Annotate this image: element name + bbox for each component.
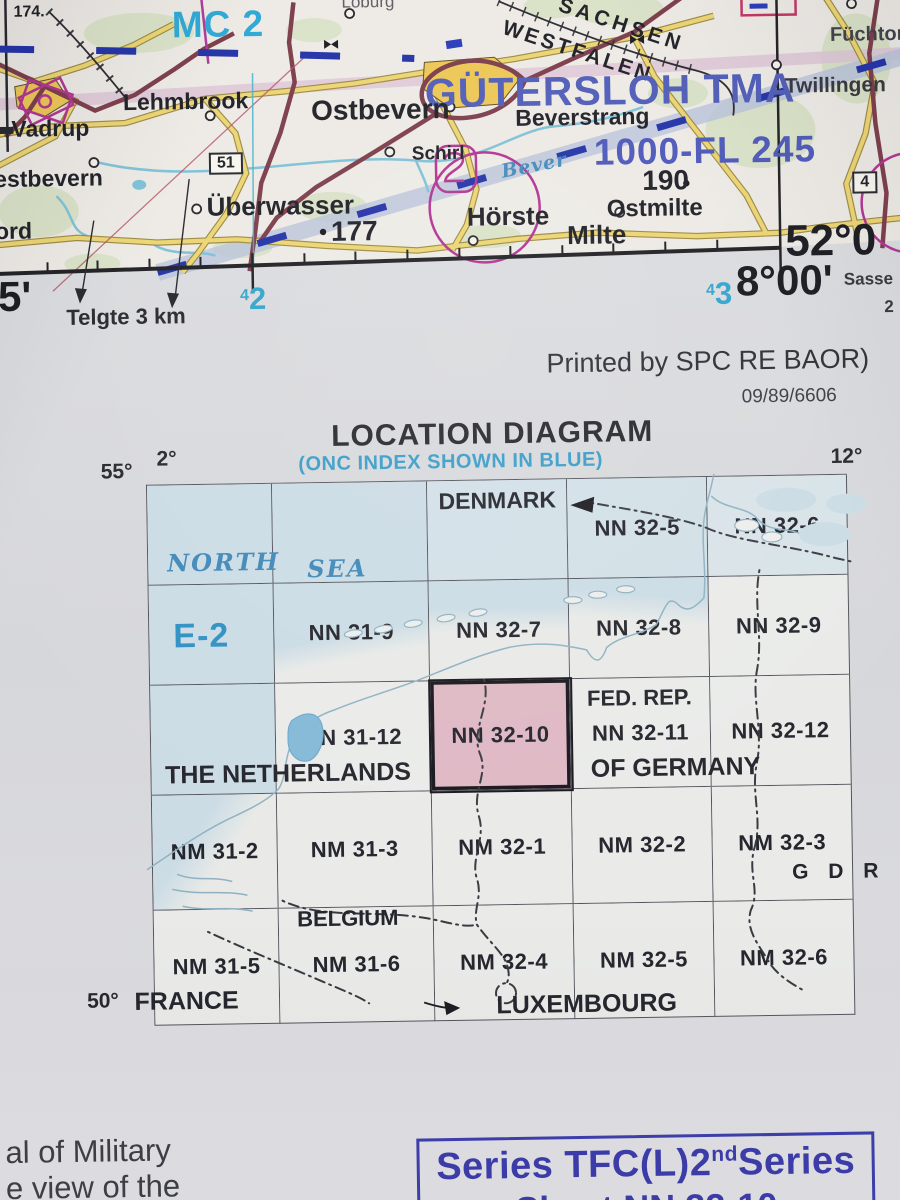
sea-label-sea: SEA: [297, 553, 377, 583]
corner-lat-55: 55°: [101, 460, 133, 484]
cell-nn-32-8: NN 32-8: [569, 577, 711, 679]
onc-sheet-label-e2: E-2: [173, 616, 230, 656]
road-shield-51: 51: [209, 152, 243, 175]
spot-height-190: 190: [642, 164, 689, 197]
margin-telgte-distance: Telgte 3 km: [66, 303, 186, 331]
cell-nn-31-9: NN 31-9: [274, 581, 431, 683]
latitude-label-52n: 52°0: [785, 215, 877, 266]
place-twillingen: Twillingen: [785, 73, 886, 99]
aeronautical-chart-corner: 174. MC 2 Loburg SACHSEN WESTFALEN GÜTER…: [0, 0, 899, 352]
place-horste: Hörste: [467, 200, 550, 232]
series-title: Series TFC(L)2ndSeries: [419, 1139, 872, 1189]
place-ostbevern: Ostbevern: [311, 93, 450, 127]
cell-nn-32-9: NN 32-9: [708, 575, 850, 677]
cell-nn-32-7: NN 32-7: [429, 579, 571, 681]
utm-grid-43-num: 3: [715, 276, 733, 311]
airspace-label-mc2: MC 2: [171, 3, 264, 46]
place-loburg: Loburg: [341, 0, 394, 13]
footer-text-line1: al of Military: [5, 1132, 171, 1171]
printed-by-imprint: Printed by SPC RE BAOR): [419, 343, 869, 381]
country-label-netherlands: THE NETHERLANDS: [140, 757, 435, 791]
corner-lon-12: 12°: [830, 445, 862, 469]
print-code: 09/89/6606: [742, 385, 837, 408]
country-label-belgium: BELGIUM: [288, 905, 408, 933]
series-suffix: Series: [738, 1140, 856, 1184]
place-beverstrang: Beverstrang: [515, 103, 650, 132]
place-westbevern: estbevern: [0, 164, 103, 193]
country-label-luxembourg: LUXEMBOURG: [469, 988, 704, 1021]
corner-lat-50: 50°: [87, 989, 119, 1013]
airspace-altitude-label: 1000-FL 245: [593, 128, 816, 173]
place-milte: Milte: [567, 219, 627, 251]
country-label-fed-rep: FED. REP.: [569, 684, 709, 712]
place-sasse-clipped: Sasse: [844, 269, 893, 290]
margin-edge-two: 2: [884, 297, 894, 317]
cell-nm-32-2: NM 32-2: [572, 787, 714, 904]
cell-nn-32-10-highlighted: NN 32-10: [430, 679, 572, 791]
cell-nn-32-6: NN 32-6: [707, 475, 849, 577]
footer-text-line2: e view of the: [6, 1168, 181, 1200]
cell-nm-32-3: NM 32-3: [712, 785, 854, 902]
chart-photo: 174. MC 2 Loburg SACHSEN WESTFALEN GÜTER…: [0, 0, 900, 1200]
country-label-denmark: DENMARK: [428, 486, 566, 515]
cell-nm-31-2: NM 31-2: [152, 794, 279, 911]
margin-minutes-label: 5': [0, 273, 32, 322]
road-shield-4: 4: [852, 171, 877, 193]
country-label-france: FRANCE: [124, 986, 249, 1017]
sea-label-north: NORTH: [167, 547, 277, 578]
series-title-box: Series TFC(L)2ndSeries Sheet NN 32-10: [416, 1131, 875, 1200]
utm-grid-42-num: 2: [249, 281, 267, 316]
place-fuchtorf: Füchtorf: [830, 23, 900, 47]
country-label-gdr: G D R: [792, 859, 886, 884]
series-prefix: Series TFC(L)2: [436, 1142, 712, 1188]
country-label-of-germany: OF GERMANY: [565, 752, 785, 784]
place-schirl: Schirl: [412, 143, 465, 166]
paper-sheet: 174. MC 2 Loburg SACHSEN WESTFALEN GÜTER…: [0, 0, 900, 1200]
location-diagram-grid: NN 32-5 NN 32-6 NN 31-9 NN 32-7 NN 32-8 …: [146, 474, 854, 1025]
utm-grid-43: 43: [706, 276, 733, 312]
series-ordinal-sup: nd: [711, 1143, 738, 1166]
corner-lon-2: 2°: [156, 447, 176, 471]
cell-nm-31-3: NM 31-3: [277, 791, 434, 908]
utm-grid-42: 42: [240, 281, 267, 317]
spot-height-174: 174.: [13, 3, 44, 21]
cell-nm-32-6: NM 32-6: [714, 900, 856, 1017]
spot-height-177: 177: [331, 215, 378, 248]
place-lehmbrook: Lehmbrook: [123, 87, 249, 116]
place-ord: ord: [0, 218, 32, 246]
place-vadrup: Vadrup: [11, 115, 89, 143]
utm-grid-42-sup: 4: [240, 287, 249, 304]
cell-nm-32-1: NM 32-1: [432, 789, 574, 906]
cell-nn-32-5: NN 32-5: [567, 477, 709, 579]
utm-grid-43-sup: 4: [706, 282, 715, 299]
